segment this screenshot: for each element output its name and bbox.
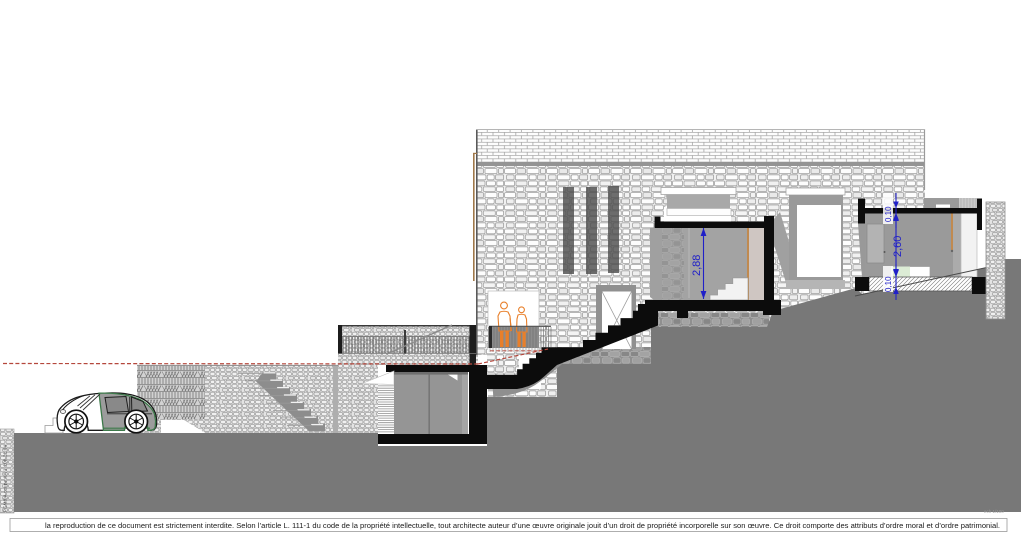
svg-text:0,10: 0,10 (884, 206, 893, 222)
svg-text:PCMI04 coupe AA 1-100 21.04: PCMI04 coupe AA 1-100 21.04 (3, 445, 8, 512)
svg-text:ech 1/100: ech 1/100 (984, 509, 1004, 514)
svg-text:2,88: 2,88 (691, 255, 703, 276)
svg-text:2,60: 2,60 (892, 236, 904, 257)
svg-text:la reproduction de ce document: la reproduction de ce document est stric… (45, 523, 1000, 530)
svg-text:0,10: 0,10 (884, 276, 893, 292)
